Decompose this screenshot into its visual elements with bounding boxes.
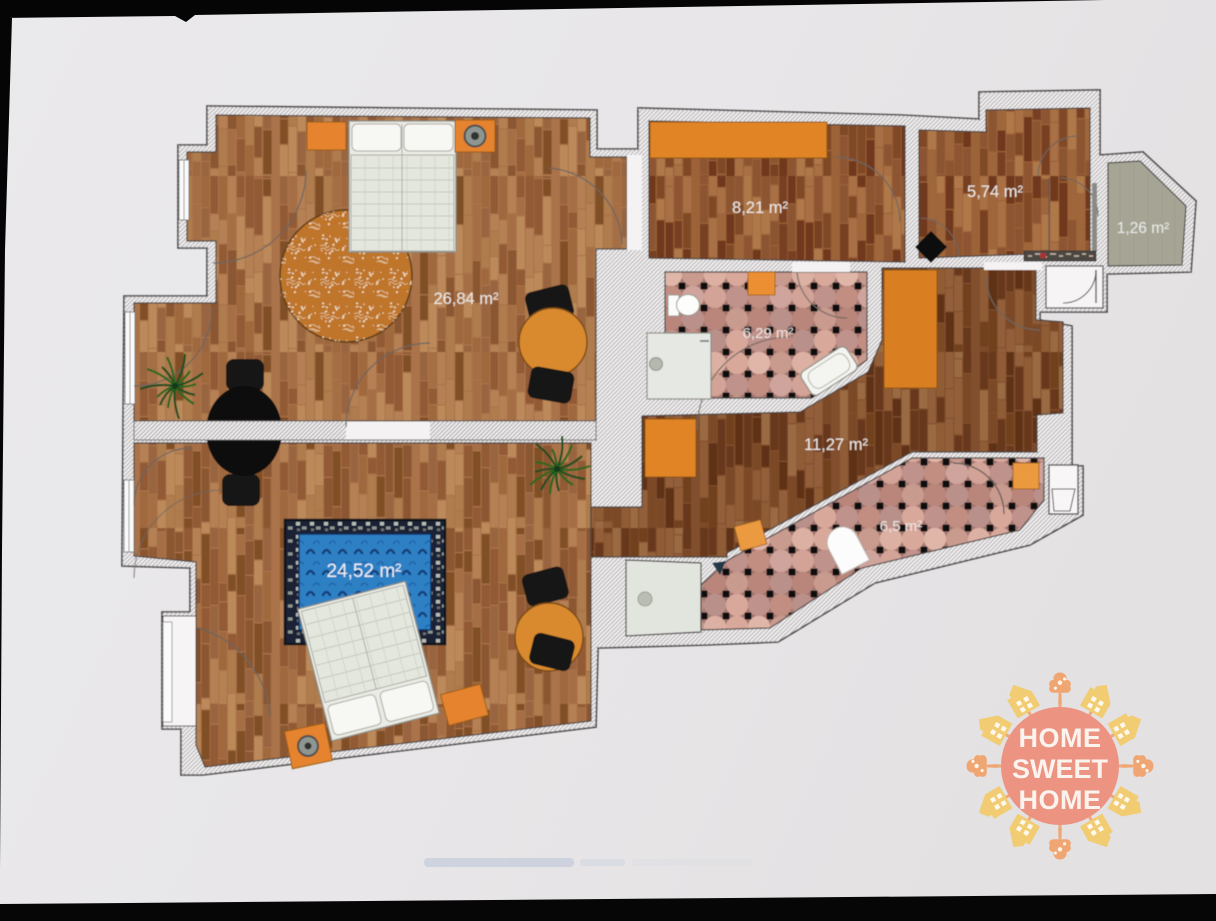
svg-text:11,27 m²: 11,27 m² <box>804 436 868 454</box>
svg-text:8,21 m²: 8,21 m² <box>732 199 788 217</box>
svg-text:SWEET: SWEET <box>1012 754 1109 784</box>
svg-text:24,52 m²: 24,52 m² <box>327 561 402 582</box>
svg-text:6,5 m²: 6,5 m² <box>880 518 923 535</box>
svg-text:26,84 m²: 26,84 m² <box>433 290 499 308</box>
svg-text:6,29 m²: 6,29 m² <box>743 325 794 342</box>
svg-text:5,74 m²: 5,74 m² <box>967 183 1023 201</box>
svg-text:HOME: HOME <box>1019 723 1102 753</box>
svg-text:HOME: HOME <box>1019 785 1102 815</box>
svg-text:1,26 m²: 1,26 m² <box>1117 220 1170 237</box>
